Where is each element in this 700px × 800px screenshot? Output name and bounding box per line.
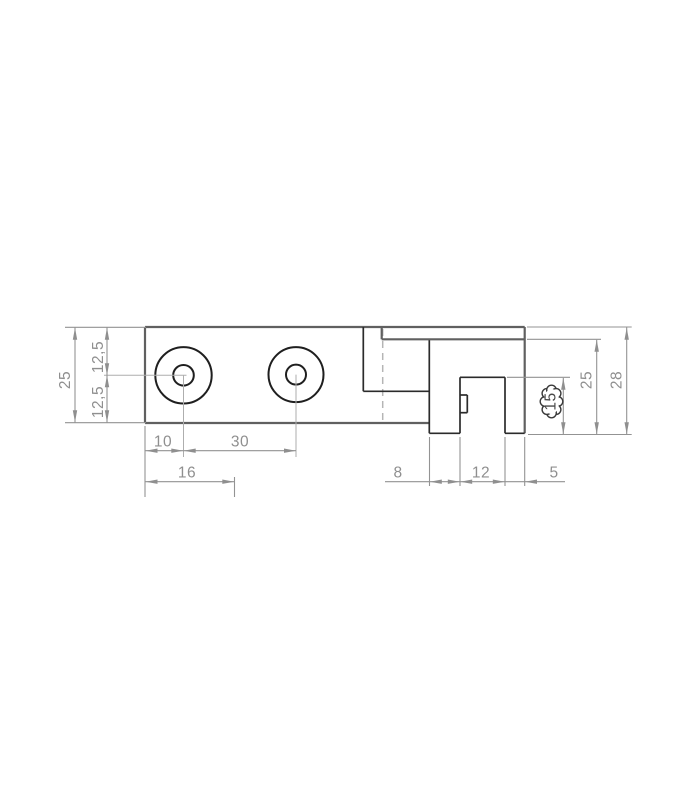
dimension-hole-spacing: 30: [184, 434, 296, 453]
dimension-plate-height: 25: [57, 327, 77, 422]
dimension-body-height: 25: [579, 340, 599, 434]
dim-overall-height-label: 28: [609, 371, 626, 389]
dim-slot-width-label: 12: [472, 465, 490, 482]
dim-base-width-label: 16: [178, 465, 196, 482]
dimension-group-bottom-right: 8 12 5: [385, 437, 565, 486]
side-view: [363, 327, 524, 433]
dim-hole-spacing-label: 30: [231, 434, 249, 451]
drawing-canvas: 25 12,5 12,5 10 30: [0, 0, 700, 800]
dimension-base-width: 16: [145, 465, 235, 484]
dimension-lip-width: 5: [525, 465, 559, 484]
dim-hole-offset-upper-label: 12,5: [90, 341, 107, 373]
technical-drawing: 25 12,5 12,5 10 30: [0, 0, 700, 800]
dimension-edge-to-hole: 10: [145, 434, 296, 453]
dimension-overall-height: 28: [609, 328, 629, 435]
dim-body-height-label: 25: [579, 371, 596, 389]
dim-flange-width-label: 8: [393, 465, 402, 482]
dim-hole-offset-lower-label: 12,5: [90, 386, 107, 418]
dimension-flange-width: 8: [393, 465, 459, 484]
dimension-group-bottom-left: 10 30 16: [145, 426, 296, 497]
dimension-slot-width: 12: [460, 465, 505, 484]
dim-plate-height-label: 25: [57, 371, 74, 389]
dim-edge-to-hole-label: 10: [154, 434, 172, 451]
dimension-slot-depth: 15: [540, 378, 565, 434]
dim-slot-depth-label: 15: [543, 392, 560, 410]
dim-lip-width-label: 5: [549, 465, 558, 482]
slot-notch: [460, 395, 467, 413]
